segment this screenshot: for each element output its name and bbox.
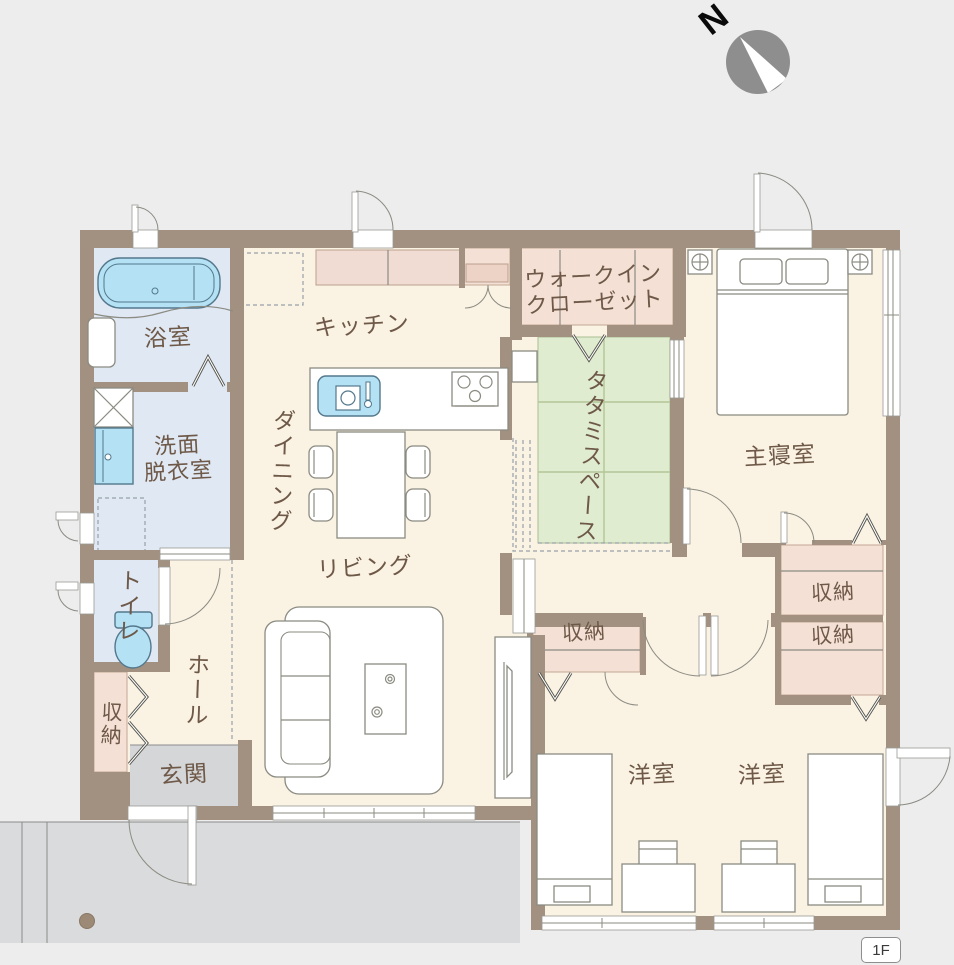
master-exterior-door-opening [755,230,812,248]
washroom-label-line1: 洗面 [154,432,201,459]
dining-table [337,432,405,538]
kids-exterior-door [886,748,950,806]
compass-icon [726,30,790,94]
coffee-table [365,664,406,734]
tatami-master-sliding-door [670,340,684,398]
master-storage-label: 収納 [810,579,855,606]
kids-storage-label: 収納 [810,622,855,649]
dining-label: ダイニング [263,408,295,534]
sofa [265,621,330,777]
floor-badge-label: 1F [872,942,890,959]
porch [0,822,520,943]
living-label: リビング [316,553,413,586]
western-room-1-label: 洋室 [627,761,676,791]
master-window [883,250,900,416]
kitchen-counter [316,250,462,285]
tatami-side-shelf [512,351,537,382]
kitchen-label: キッチン [313,311,410,344]
living-hall-door [513,559,535,633]
entrance-storage-label: 収納 [97,701,124,748]
master-bedroom-label: 主寝室 [743,441,816,472]
washroom-window [56,512,94,544]
hall-storage-label: 収納 [561,619,606,646]
kids-bed-left [537,754,612,905]
master-bed [717,249,848,415]
washroom-label: 洗面脱衣室 [142,432,214,488]
toilet-label: トイレ [111,568,141,644]
washing-machine-space [94,388,133,427]
floor-badge: 1F [861,937,901,963]
kitchen-back-door-opening [353,230,393,248]
floor-plan-canvas [0,0,954,965]
tv-board [495,637,531,798]
wash-basin [95,428,133,484]
bathroom-label: 浴室 [143,324,192,354]
wic-label: ウォークインクローゼット [524,261,665,321]
western-room-2-label: 洋室 [737,761,786,791]
hall-label: ホール [179,652,209,728]
toilet-window [56,582,94,614]
entrance-label: 玄関 [159,761,208,791]
kids-bed-right [808,754,883,905]
bed-corner-symbol-left [688,250,712,274]
washroom-label-line2: 脱衣室 [144,458,214,487]
bathroom-exterior-door-opening [133,230,158,248]
pantry-counter [466,264,508,282]
living-sliding-window [273,806,475,820]
wic-label-line2: クローゼット [525,287,664,319]
kids-room-windows [542,916,814,930]
stove [452,372,498,406]
porch-post [80,914,95,929]
washroom-sliding-door [160,548,230,560]
bed-corner-symbol-right [848,250,872,274]
bathroom-counter [88,318,115,367]
